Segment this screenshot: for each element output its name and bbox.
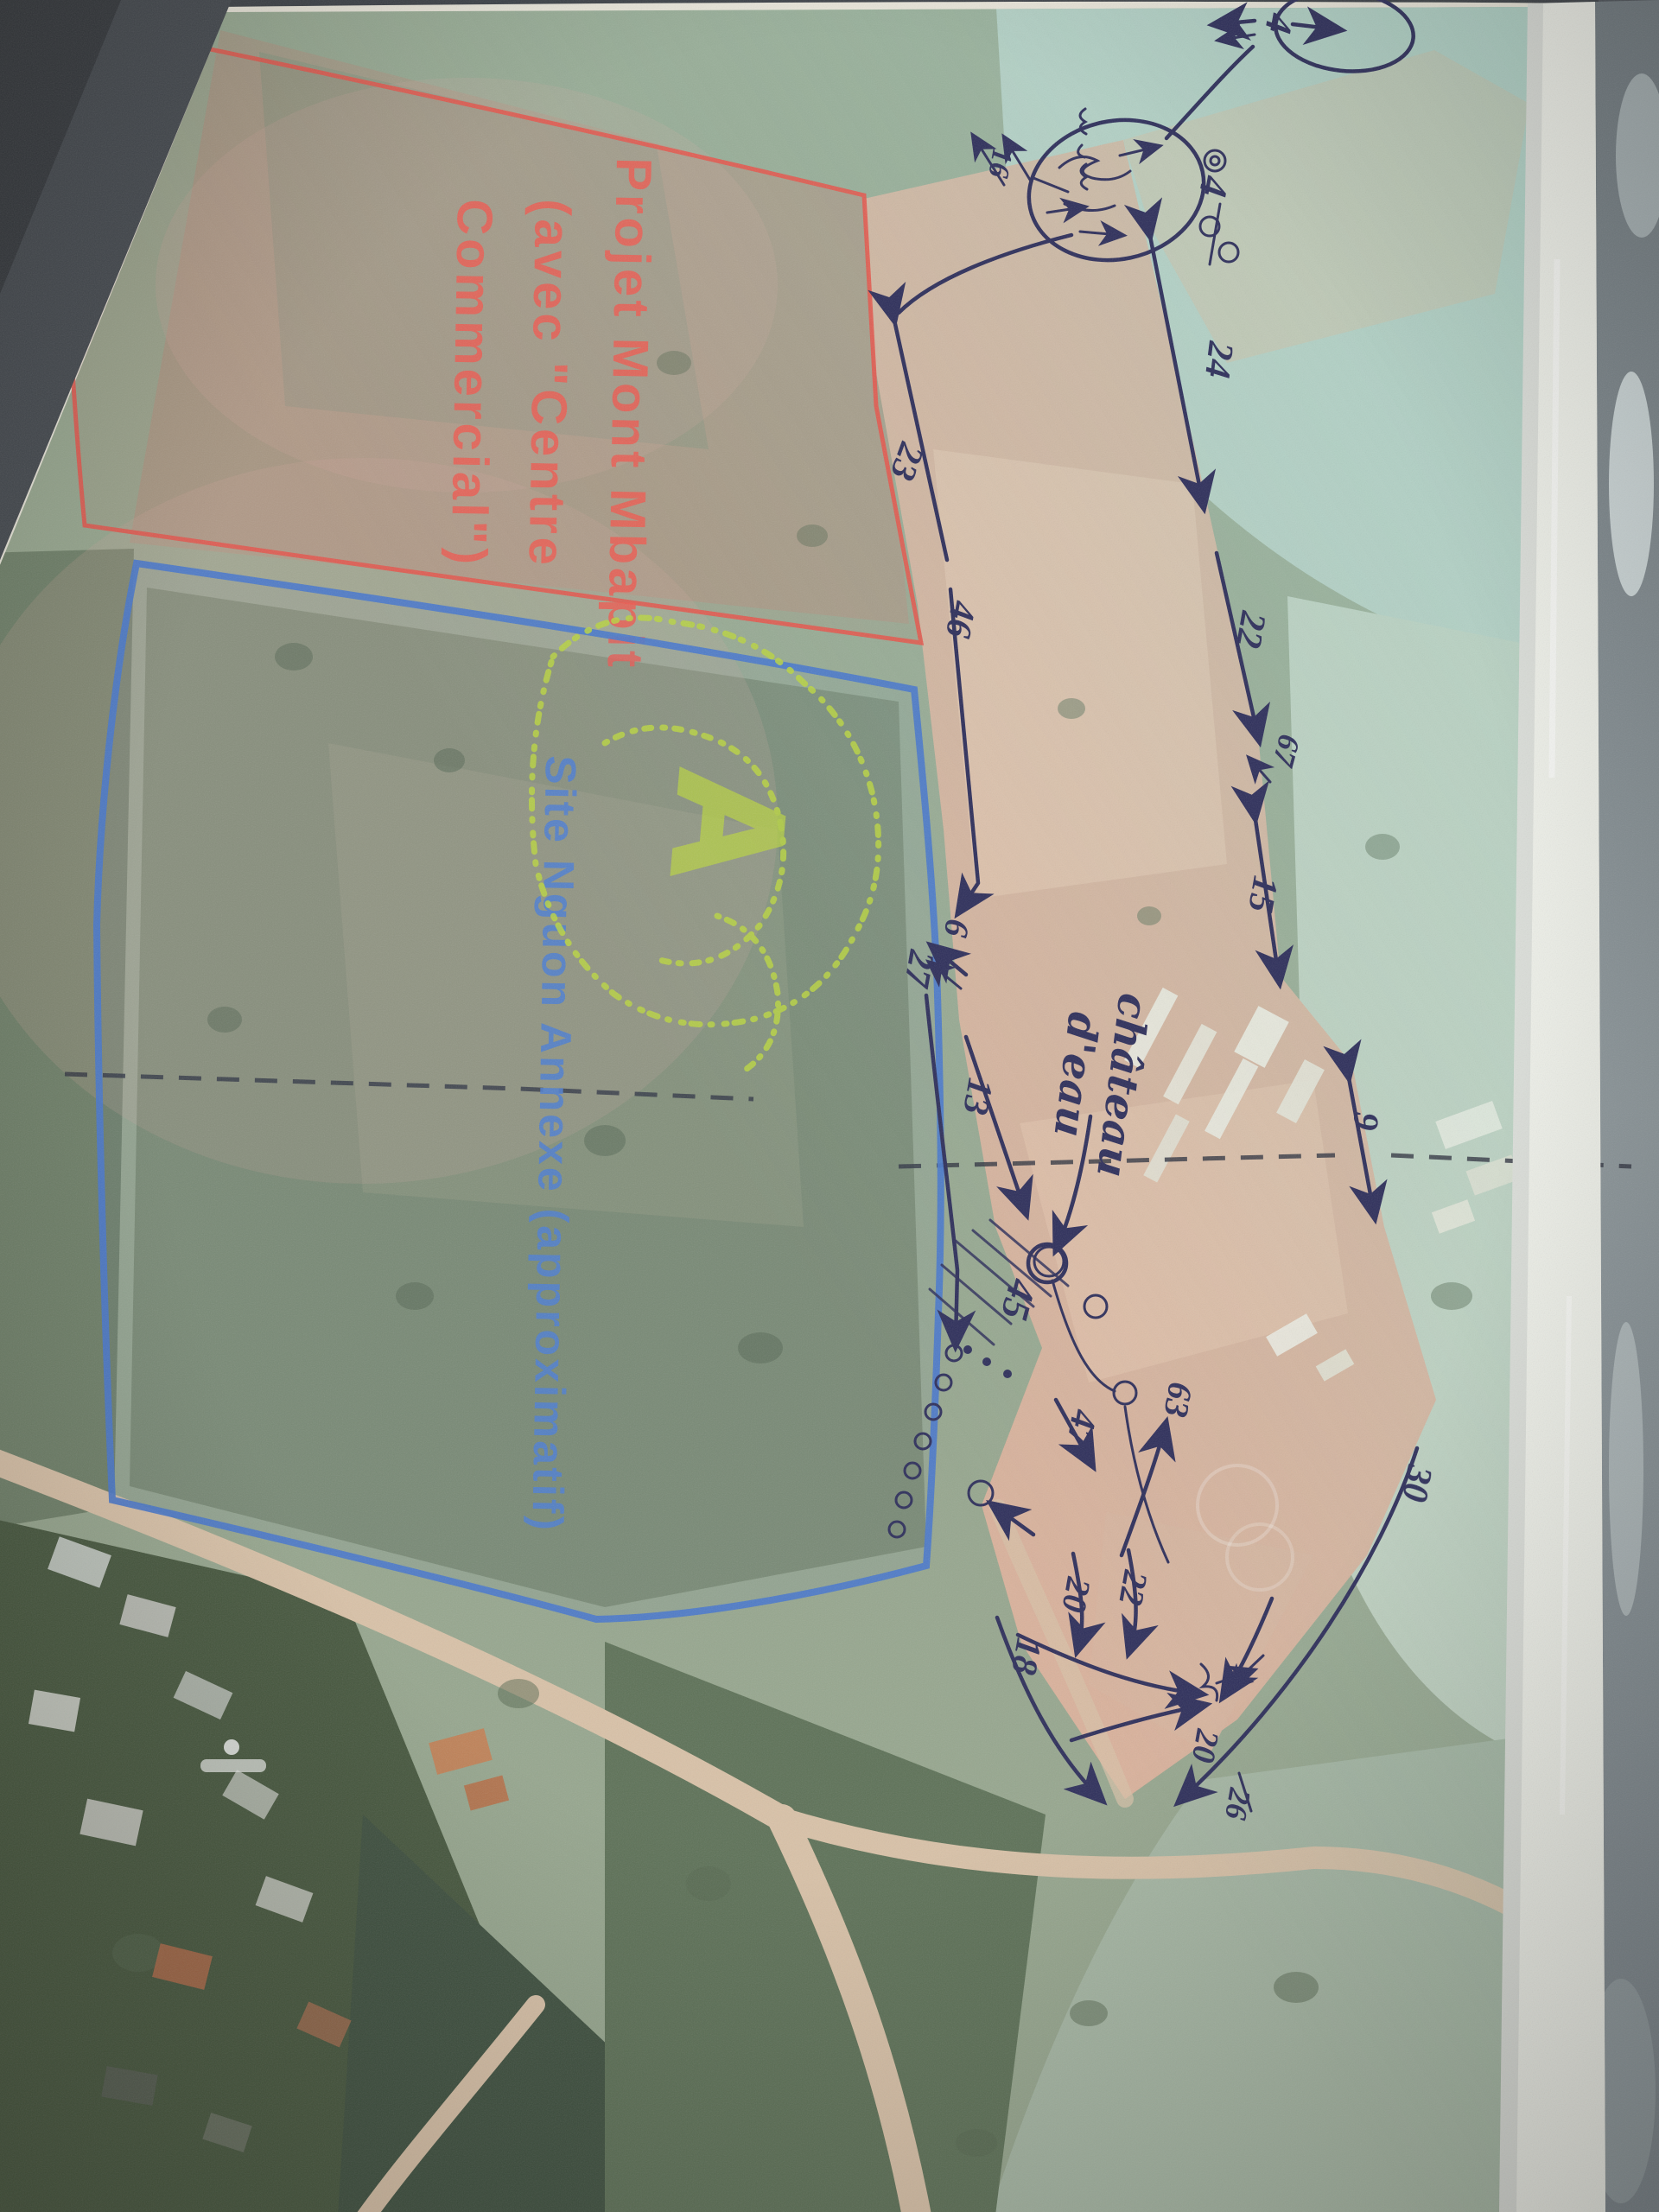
map-photo-canvas: Projet Mont Mbapit (avec "Centre Commerc… bbox=[0, 0, 1659, 2212]
photo-vignette bbox=[0, 0, 1659, 2212]
photo-of-annotated-satellite-map: Projet Mont Mbapit (avec "Centre Commerc… bbox=[0, 0, 1659, 2212]
